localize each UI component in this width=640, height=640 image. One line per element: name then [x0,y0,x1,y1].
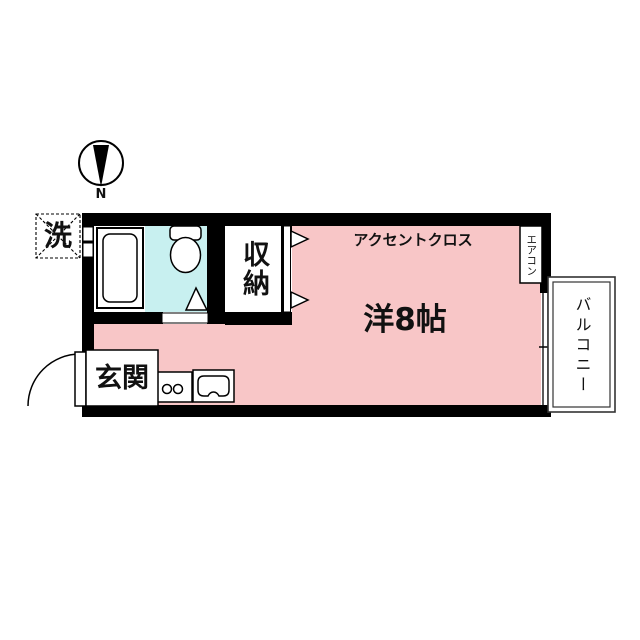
entrance-door-arc [28,354,80,406]
compass [79,141,123,187]
bathtub [97,228,143,308]
compass-needle [93,145,109,187]
toilet-bowl [171,238,201,273]
aircon-label: エアコン [520,227,542,283]
bathtub-inner [103,234,137,302]
window-left-pane-1 [83,227,93,241]
wall-bath-storage-divider [207,226,225,324]
accent-cross-label: アクセントクロス [338,231,488,249]
entrance-door [28,352,86,406]
north-label: N [89,187,113,201]
room-size-label: 洋8帖 [320,302,490,338]
window-left-pane-2 [83,243,93,257]
kitchen-stove [157,372,192,402]
stove-burner-right [174,385,183,394]
wall-bath-bottom [94,312,163,324]
entrance-label: 玄関 [87,351,157,405]
laundry-label: 洗 [36,214,80,258]
kitchen-sink [193,370,234,402]
bath-door-threshold [162,313,208,323]
wall-top [82,213,551,226]
entrance-door-leaf [75,352,86,406]
floorplan-canvas: 洗 N 収納 アクセントクロス エアコン 洋8帖 バルコニー 玄関 [0,0,640,640]
closet-door-strip [284,226,291,312]
balcony-label: バルコニー [553,283,610,408]
wall-storage-bottom [225,312,292,325]
stove-burner-left [163,385,172,394]
storage-label: 収納 [225,226,282,312]
toilet [170,226,201,273]
wall-bottom [82,405,551,417]
